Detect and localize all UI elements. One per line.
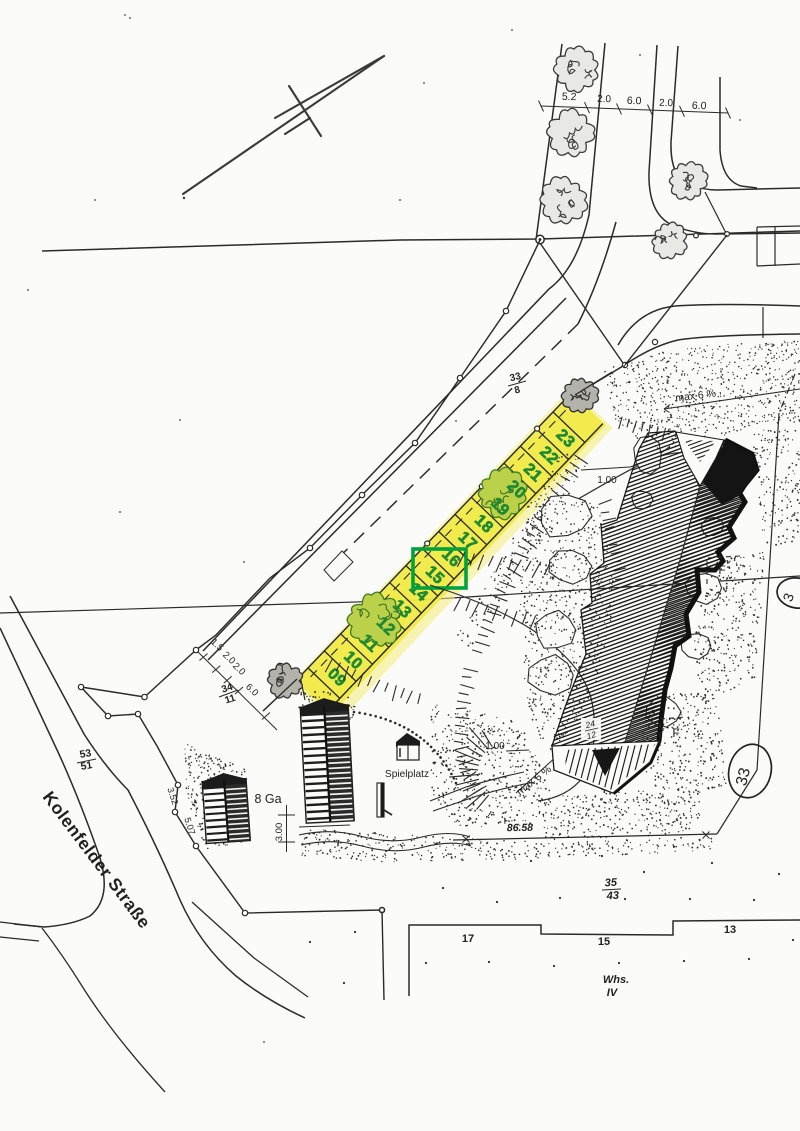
svg-text:F: F — [718, 563, 725, 577]
svg-text:3.00: 3.00 — [274, 823, 285, 842]
svg-text:35: 35 — [604, 877, 618, 890]
svg-text:5.2: 5.2 — [562, 91, 577, 104]
svg-text:51: 51 — [80, 759, 94, 773]
svg-text:8 Ga: 8 Ga — [254, 792, 281, 806]
svg-text:Whs.: Whs. — [603, 974, 629, 986]
svg-text:6.0: 6.0 — [627, 95, 642, 108]
svg-text:17: 17 — [462, 933, 474, 945]
svg-text:Spielplatz: Spielplatz — [385, 769, 429, 780]
svg-text:2.0: 2.0 — [659, 98, 674, 109]
svg-text:15: 15 — [598, 936, 610, 948]
svg-text:1.00: 1.00 — [597, 475, 617, 486]
svg-text:IV: IV — [607, 987, 619, 999]
svg-text:43: 43 — [605, 890, 619, 903]
svg-text:13: 13 — [724, 924, 736, 936]
svg-text:86.58: 86.58 — [507, 822, 534, 834]
svg-text:6.0: 6.0 — [692, 100, 707, 113]
svg-text:F: F — [672, 726, 679, 740]
